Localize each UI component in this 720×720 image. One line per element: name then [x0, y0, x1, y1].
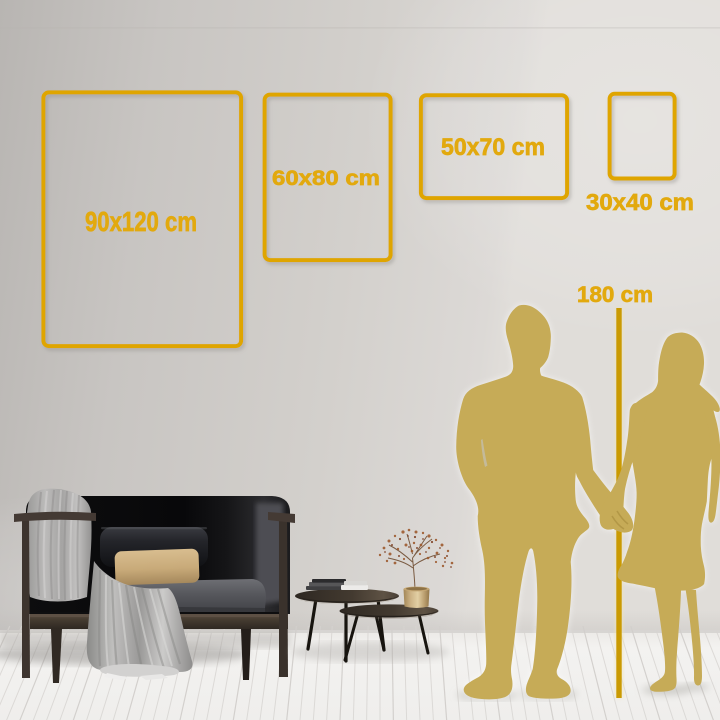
- svg-text:60x80 cm: 60x80 cm: [272, 166, 380, 190]
- svg-text:50x70 cm: 50x70 cm: [441, 134, 545, 161]
- svg-text:30x40 cm: 30x40 cm: [586, 189, 694, 215]
- svg-text:90x120 cm: 90x120 cm: [85, 206, 197, 237]
- svg-text:180 cm: 180 cm: [577, 282, 653, 307]
